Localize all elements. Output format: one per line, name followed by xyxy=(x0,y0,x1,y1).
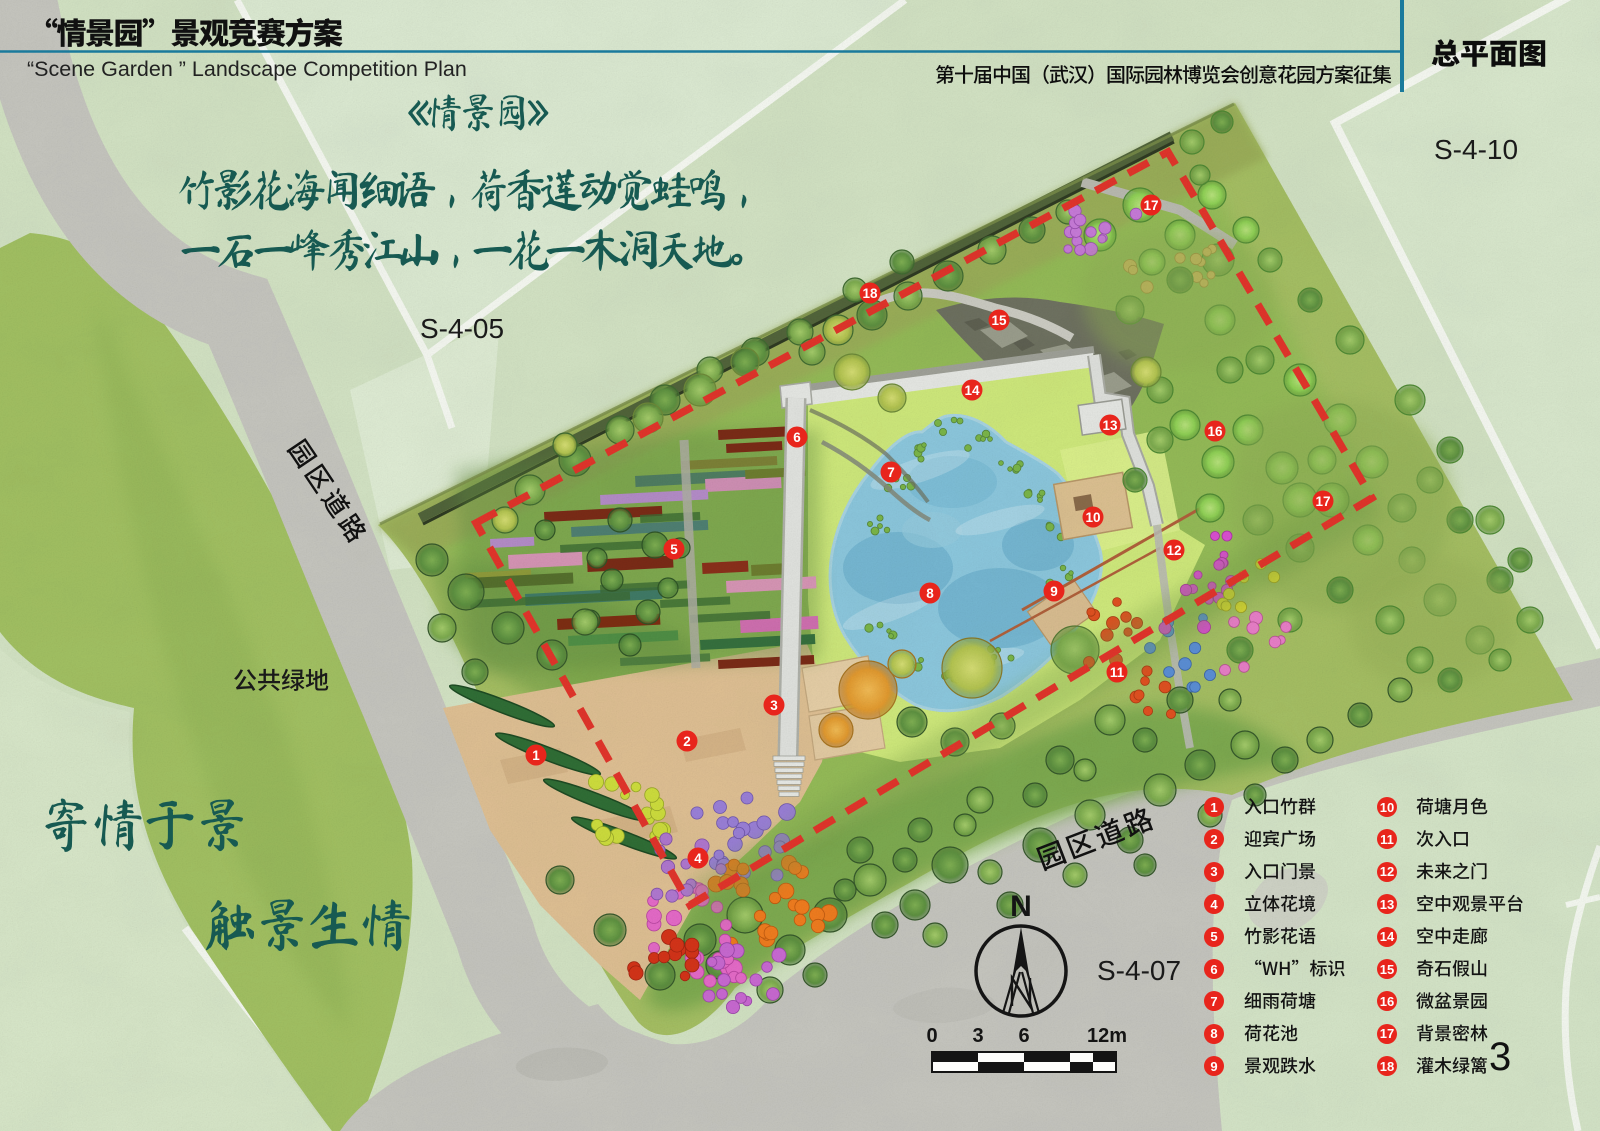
svg-text:14: 14 xyxy=(1380,929,1395,944)
svg-text:13: 13 xyxy=(1380,897,1394,912)
svg-text:6: 6 xyxy=(793,430,801,445)
svg-text:7: 7 xyxy=(887,465,895,480)
svg-text:6: 6 xyxy=(1018,1025,1029,1047)
svg-text:17: 17 xyxy=(1315,494,1330,509)
svg-text:3: 3 xyxy=(770,698,778,713)
svg-text:12: 12 xyxy=(1166,543,1181,558)
svg-text:11: 11 xyxy=(1380,832,1394,847)
svg-text:16: 16 xyxy=(1207,424,1223,439)
svg-text:4: 4 xyxy=(1210,897,1218,912)
svg-text:7: 7 xyxy=(1210,994,1217,1009)
svg-text:5: 5 xyxy=(670,542,678,557)
svg-text:12: 12 xyxy=(1380,864,1394,879)
svg-text:14: 14 xyxy=(964,383,980,398)
svg-text:10: 10 xyxy=(1380,800,1394,815)
svg-text:1: 1 xyxy=(532,748,540,763)
svg-text:17: 17 xyxy=(1380,1026,1394,1041)
svg-text:3: 3 xyxy=(1489,1035,1511,1079)
svg-text:9: 9 xyxy=(1050,584,1058,599)
svg-text:1: 1 xyxy=(1210,800,1217,815)
svg-text:S-4-10: S-4-10 xyxy=(1434,134,1518,165)
svg-text:13: 13 xyxy=(1102,418,1118,433)
svg-text:12m: 12m xyxy=(1087,1025,1127,1047)
svg-text:2: 2 xyxy=(1210,832,1217,847)
svg-text:10: 10 xyxy=(1085,510,1100,525)
svg-text:8: 8 xyxy=(1210,1026,1217,1041)
svg-text:S-4-07: S-4-07 xyxy=(1097,955,1181,986)
svg-text:2: 2 xyxy=(683,734,691,749)
svg-text:9: 9 xyxy=(1210,1059,1217,1074)
svg-text:18: 18 xyxy=(862,286,878,301)
svg-text:3: 3 xyxy=(1210,864,1217,879)
svg-text:5: 5 xyxy=(1210,929,1217,944)
svg-text:N: N xyxy=(1010,890,1032,923)
svg-text:0: 0 xyxy=(926,1025,937,1047)
svg-text:15: 15 xyxy=(1380,962,1394,977)
svg-text:16: 16 xyxy=(1380,994,1394,1009)
svg-text:8: 8 xyxy=(926,586,934,601)
svg-text:3: 3 xyxy=(972,1025,983,1047)
svg-text:11: 11 xyxy=(1110,665,1125,680)
svg-text:“Scene Garden ” Landscape Comp: “Scene Garden ” Landscape Competition Pl… xyxy=(27,57,467,81)
svg-text:6: 6 xyxy=(1210,962,1217,977)
svg-text:18: 18 xyxy=(1380,1059,1394,1074)
svg-text:15: 15 xyxy=(991,313,1007,328)
svg-text:17: 17 xyxy=(1143,198,1158,213)
svg-text:S-4-05: S-4-05 xyxy=(420,313,504,344)
svg-text:4: 4 xyxy=(694,851,702,866)
